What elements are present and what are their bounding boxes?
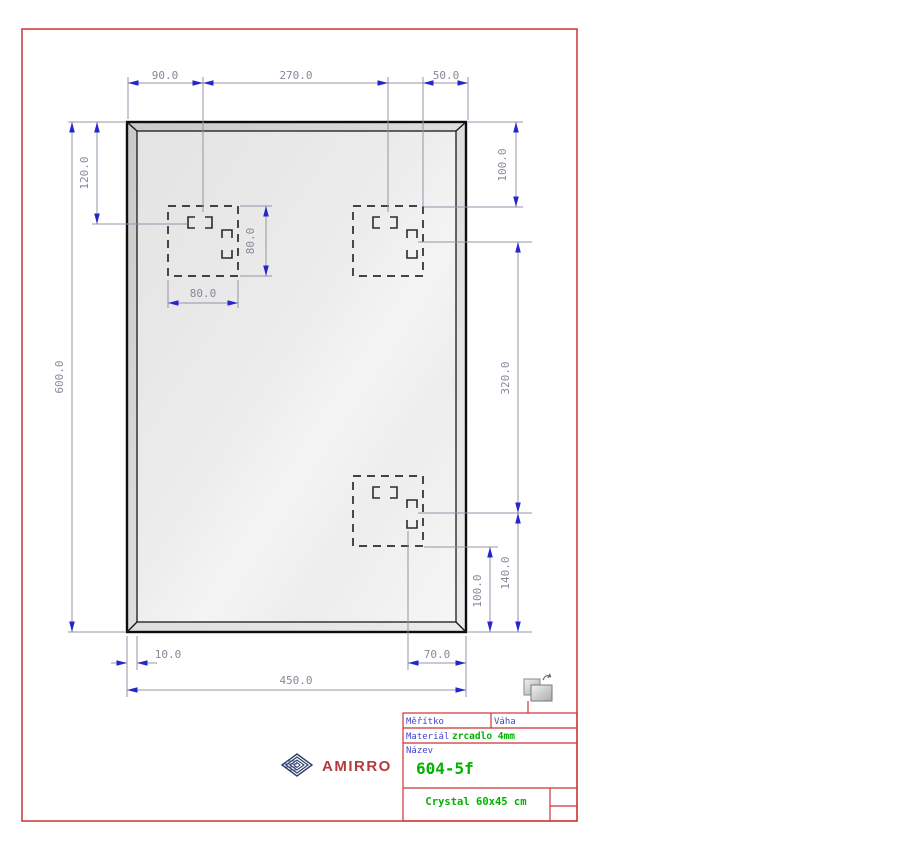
material-value: zrcadlo 4mm — [452, 731, 515, 742]
dim-label-width: 450.0 — [279, 674, 312, 687]
dim-label-hanger-width: 80.0 — [190, 287, 217, 300]
drawing-sheet: 90.0 270.0 50.0 600.0 120.0 80.0 80.0 10… — [0, 0, 900, 851]
dim-label-hole-vertical-spacing: 320.0 — [499, 361, 512, 394]
nested-diamonds-icon — [282, 754, 312, 776]
title-block: Měřítko Váha Materiál zrcadlo 4mm Název … — [403, 701, 577, 821]
drawing-canvas: 90.0 270.0 50.0 600.0 120.0 80.0 80.0 10… — [0, 0, 900, 851]
dim-label-right-top-offset: 100.0 — [496, 148, 509, 181]
layout-icon-front-sheet — [531, 685, 552, 701]
scale-label: Měřítko — [406, 717, 444, 727]
dim-label-bevel-width: 10.0 — [155, 648, 182, 661]
name-label: Název — [406, 746, 433, 756]
weight-label: Váha — [494, 717, 516, 727]
dim-label-bottom-right-offset: 140.0 — [499, 556, 512, 589]
dim-label-top-hole-offset: 90.0 — [152, 69, 179, 82]
product-name: Crystal 60x45 cm — [425, 796, 526, 808]
dim-label-bottom-hole-offset: 100.0 — [471, 574, 484, 607]
dim-label-top-to-hanger: 120.0 — [78, 156, 91, 189]
dim-label-top-right-offset: 50.0 — [433, 69, 460, 82]
material-label: Materiál — [406, 732, 449, 742]
logo-text: AMIRRO — [322, 758, 392, 775]
dim-label-height: 600.0 — [53, 360, 66, 393]
amirro-logo: AMIRRO — [282, 754, 392, 776]
dim-label-top-hole-spacing: 270.0 — [279, 69, 312, 82]
name-value: 604-5f — [416, 759, 474, 778]
mirror-outline — [127, 122, 466, 632]
layout-icon — [524, 673, 552, 701]
dim-label-hanger-height: 80.0 — [244, 228, 257, 255]
dim-label-bottom-hole-right: 70.0 — [424, 648, 451, 661]
